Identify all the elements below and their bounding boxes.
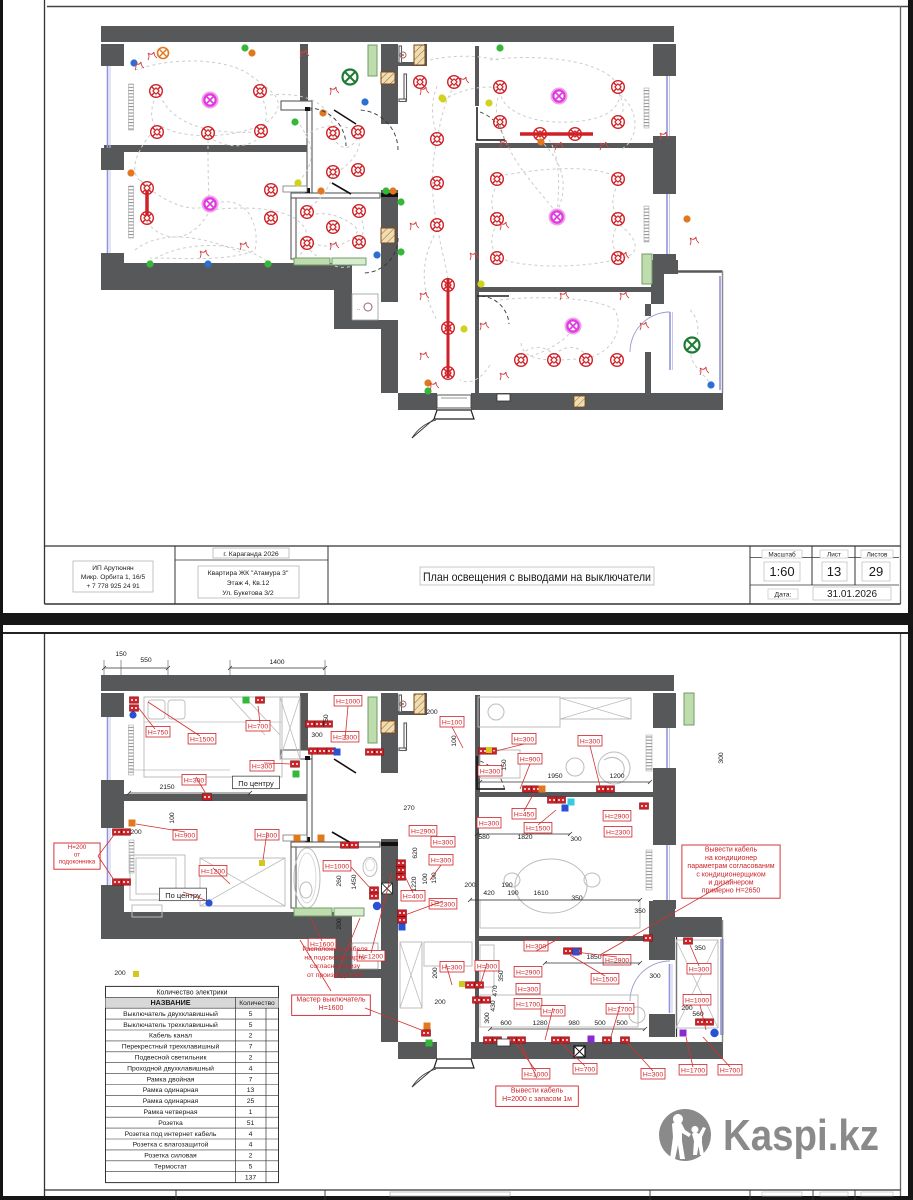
svg-text:H=1700: H=1700 (516, 1002, 540, 1009)
svg-text:+ 7 778 925 24 91: + 7 778 925 24 91 (86, 583, 140, 590)
svg-text:Рамка одинарная: Рамка одинарная (143, 1087, 199, 1094)
svg-text:1280: 1280 (532, 1020, 547, 1027)
svg-text:Выключатель трехклавишный: Выключатель трехклавишный (123, 1021, 218, 1029)
svg-text:По центру: По центру (238, 779, 274, 788)
svg-text:H=700: H=700 (248, 724, 268, 731)
svg-text:на подсветку карты: на подсветку карты (304, 955, 365, 962)
svg-text:620: 620 (412, 847, 419, 859)
svg-text:Розетка под интернет кабель: Розетка под интернет кабель (125, 1130, 217, 1138)
svg-text:290: 290 (681, 1005, 693, 1012)
svg-text:350: 350 (634, 908, 646, 915)
svg-text:200: 200 (130, 829, 142, 836)
svg-text:H=900: H=900 (520, 757, 540, 764)
svg-text:Кабель канал: Кабель канал (149, 1032, 192, 1040)
svg-text:H=700: H=700 (720, 1068, 740, 1075)
svg-text:2: 2 (249, 1055, 253, 1062)
svg-text:100: 100 (422, 873, 429, 885)
svg-text:ИП Арутюнян: ИП Арутюнян (92, 565, 134, 572)
svg-text:7: 7 (249, 1044, 253, 1051)
svg-text:1220: 1220 (411, 876, 418, 891)
svg-text:470: 470 (492, 985, 499, 997)
svg-text:План освещения с выводами на в: План освещения с выводами на выключатели (423, 570, 651, 584)
svg-text:190: 190 (501, 882, 513, 889)
svg-text:Листов: Листов (867, 552, 888, 559)
svg-text:Расположить кабеля: Расположить кабеля (302, 945, 368, 953)
svg-text:H=300: H=300 (184, 778, 204, 785)
svg-text:Количество: Количество (239, 1000, 275, 1007)
svg-text:г. Караганда 2026: г. Караганда 2026 (223, 551, 279, 558)
svg-text:Выключатель двухклавишный: Выключатель двухклавишный (123, 1010, 218, 1018)
svg-text:H=1500: H=1500 (190, 737, 214, 744)
svg-text:Вывести кабель: Вывести кабель (705, 846, 758, 854)
svg-text:H=300: H=300 (480, 769, 500, 776)
svg-text:Термостат: Термостат (154, 1164, 187, 1171)
svg-text:25: 25 (247, 1098, 255, 1105)
svg-text:51: 51 (247, 1120, 255, 1127)
svg-text:137: 137 (245, 1174, 257, 1181)
svg-text:2150: 2150 (159, 784, 174, 791)
svg-text:5: 5 (249, 1022, 253, 1029)
svg-text:НАЗВАНИЕ: НАЗВАНИЕ (150, 998, 190, 1007)
svg-text:Рамка одинарная: Рамка одинарная (143, 1098, 199, 1105)
svg-text:13: 13 (247, 1087, 255, 1094)
svg-text:Масштаб: Масштаб (768, 551, 796, 559)
svg-text:H=700: H=700 (543, 1009, 563, 1016)
svg-text:Розетка: Розетка (158, 1120, 183, 1127)
svg-text:200: 200 (464, 882, 476, 889)
svg-text:H=1000: H=1000 (325, 864, 349, 871)
svg-text:Ул. Букетова 3/2: Ул. Букетова 3/2 (222, 590, 274, 597)
svg-text:H=2900: H=2900 (605, 958, 629, 965)
svg-text:1820: 1820 (517, 834, 532, 841)
svg-text:200: 200 (432, 967, 439, 979)
svg-text:1200: 1200 (609, 773, 624, 780)
svg-text:420: 420 (483, 890, 495, 897)
svg-text:1400: 1400 (269, 659, 284, 666)
svg-text:5: 5 (249, 1164, 253, 1171)
svg-text:H=1500: H=1500 (593, 977, 617, 984)
svg-text:Рамка четверная: Рамка четверная (143, 1109, 197, 1116)
svg-text:Вывести кабель: Вывести кабель (511, 1087, 564, 1095)
svg-text:H=300: H=300 (479, 821, 499, 828)
svg-text:H=2000 с запасом 1м: H=2000 с запасом 1м (502, 1096, 572, 1103)
svg-text:300: 300 (649, 973, 661, 980)
svg-text:H=1000: H=1000 (685, 998, 709, 1005)
svg-text:1450: 1450 (351, 874, 358, 889)
svg-text:H=300: H=300 (689, 967, 709, 974)
svg-text:4: 4 (249, 1065, 253, 1072)
svg-text:H=1700: H=1700 (608, 1007, 632, 1014)
svg-text:Дата:: Дата: (775, 592, 792, 599)
svg-text:на кондиционер: на кондиционер (705, 855, 757, 862)
svg-text:Количество электрики: Количество электрики (157, 989, 228, 996)
svg-text:H=100: H=100 (442, 720, 462, 727)
svg-text:1950: 1950 (547, 773, 562, 780)
svg-text:29: 29 (869, 564, 883, 579)
svg-text:150: 150 (115, 651, 127, 658)
svg-text:H=1200: H=1200 (201, 869, 225, 876)
svg-text:2: 2 (249, 1033, 253, 1040)
svg-text:200: 200 (114, 970, 126, 977)
svg-text:7: 7 (249, 1076, 253, 1083)
svg-text:..: .. (357, 306, 361, 312)
svg-text:H=2300: H=2300 (606, 830, 630, 837)
svg-text:H=300: H=300 (477, 964, 497, 971)
svg-text:H=300: H=300 (431, 858, 451, 865)
svg-text:300: 300 (484, 1012, 491, 1024)
svg-text:4: 4 (249, 1142, 253, 1149)
svg-text:H=900: H=900 (175, 833, 195, 840)
svg-text:H=300: H=300 (433, 840, 453, 847)
svg-text:350: 350 (694, 945, 706, 952)
svg-text:Розетка силовая: Розетка силовая (144, 1153, 197, 1160)
svg-text:от: от (74, 851, 80, 858)
svg-text:Kaspi.kz: Kaspi.kz (723, 1111, 879, 1160)
svg-text:Подвесной светильник: Подвесной светильник (135, 1054, 207, 1062)
svg-text:H=2900: H=2900 (605, 814, 629, 821)
svg-text:Перекрестный трехклавишный: Перекрестный трехклавишный (122, 1043, 220, 1051)
svg-text:Рамка двойная: Рамка двойная (147, 1075, 195, 1083)
svg-text:H=300: H=300 (514, 737, 534, 744)
svg-text:13: 13 (827, 564, 841, 579)
svg-text:300: 300 (570, 836, 582, 843)
svg-text:с кондиционерщиком: с кондиционерщиком (696, 871, 766, 878)
svg-text:580: 580 (478, 834, 490, 841)
svg-text:H=200: H=200 (68, 844, 87, 851)
svg-text:350: 350 (498, 970, 505, 982)
svg-text:H=300: H=300 (442, 965, 462, 972)
svg-text:260: 260 (336, 875, 343, 887)
svg-text:H=2300: H=2300 (431, 902, 455, 909)
svg-text:100: 100 (169, 812, 176, 824)
svg-text:H=1700: H=1700 (681, 1068, 705, 1075)
svg-text:Микр. Орбита 1, 16/5: Микр. Орбита 1, 16/5 (81, 573, 146, 581)
svg-text:31.01.2026: 31.01.2026 (827, 589, 877, 600)
svg-text:350: 350 (571, 895, 583, 902)
svg-text:примерно H=2650: примерно H=2650 (702, 888, 761, 895)
svg-text:H=2900: H=2900 (516, 970, 540, 977)
svg-text:Мастер выключатель: Мастер выключатель (296, 997, 365, 1004)
svg-text:500: 500 (594, 1020, 606, 1027)
svg-text:270: 270 (403, 805, 415, 812)
svg-text:200: 200 (336, 918, 343, 930)
svg-text:Квартира ЖК "Атамура 3": Квартира ЖК "Атамура 3" (208, 570, 289, 577)
svg-text:980: 980 (568, 1020, 580, 1027)
svg-text:550: 550 (140, 657, 152, 664)
svg-text:190: 190 (507, 890, 519, 897)
svg-text:H=700: H=700 (575, 1067, 595, 1074)
svg-text:150: 150 (501, 759, 508, 771)
svg-text:1: 1 (249, 1109, 253, 1116)
svg-text:Розетка с влагозащитой: Розетка с влагозащитой (133, 1141, 209, 1149)
svg-text:500: 500 (616, 1020, 628, 1027)
svg-text:подоконника: подоконника (59, 859, 96, 866)
svg-text:H=300: H=300 (580, 739, 600, 746)
svg-text:2: 2 (249, 1153, 253, 1160)
svg-text:Этаж 4, Кв.12: Этаж 4, Кв.12 (227, 580, 270, 587)
svg-text:H=750: H=750 (148, 730, 168, 737)
svg-text:H=1500: H=1500 (526, 826, 550, 833)
svg-text:750: 750 (323, 714, 330, 726)
svg-text:H=300: H=300 (518, 987, 538, 994)
svg-text:600: 600 (500, 1020, 512, 1027)
svg-text:Проходной двухклавишный: Проходной двухклавишный (127, 1064, 214, 1072)
svg-text:300: 300 (311, 732, 323, 739)
svg-text:H=400: H=400 (403, 894, 423, 901)
svg-text:200: 200 (426, 709, 438, 716)
svg-text:H=2900: H=2900 (411, 829, 435, 836)
svg-text:430: 430 (490, 1000, 497, 1012)
svg-text:200: 200 (434, 999, 446, 1006)
svg-text:4: 4 (249, 1131, 253, 1138)
svg-text:H=1600: H=1600 (319, 1005, 344, 1012)
svg-text:параметрам согласованим: параметрам согласованим (687, 863, 774, 870)
svg-text:300: 300 (718, 752, 725, 764)
svg-text:H=300: H=300 (252, 764, 272, 771)
svg-text:H=1000: H=1000 (336, 699, 360, 706)
svg-text:и дизайнером: и дизайнером (708, 879, 753, 887)
svg-text:H=450: H=450 (514, 812, 534, 819)
svg-text:H=300: H=300 (643, 1072, 663, 1079)
svg-text:1610: 1610 (533, 890, 548, 897)
svg-text:1:60: 1:60 (769, 564, 794, 579)
svg-text:Лист: Лист (827, 552, 841, 559)
svg-text:5: 5 (249, 1011, 253, 1018)
